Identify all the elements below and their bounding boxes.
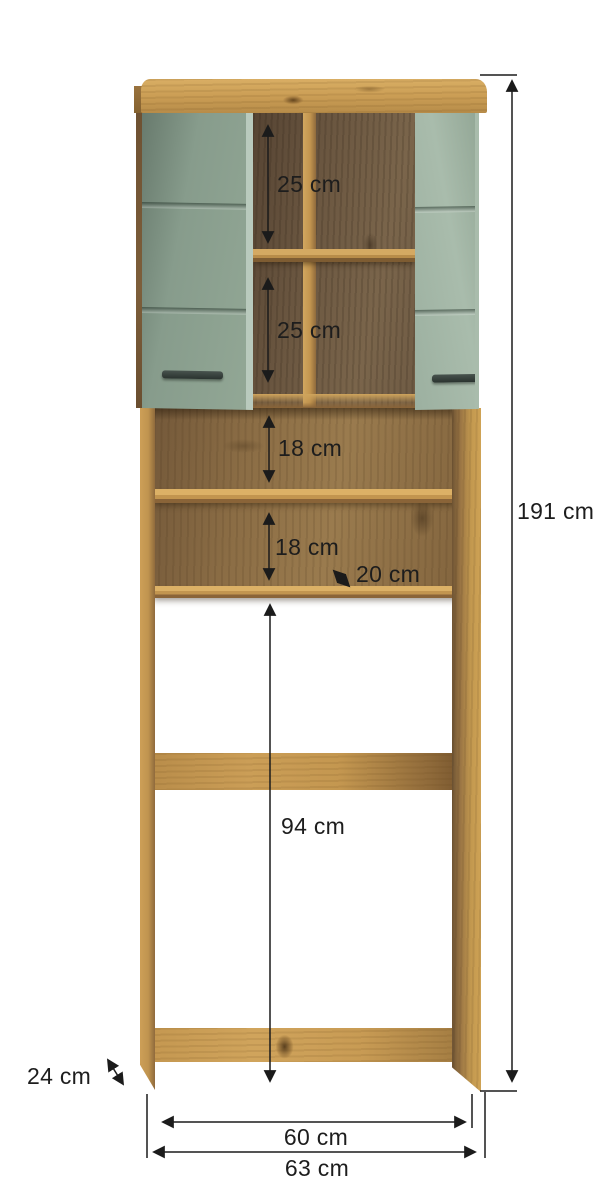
dimension-label-shelf-depth: 20 cm — [356, 562, 420, 586]
dimension-label-overall-height: 191 cm — [517, 499, 594, 523]
open-shelf-upper-board — [151, 489, 469, 503]
dimension-label-inner-width: 60 cm — [284, 1125, 348, 1149]
left-door-handle — [162, 370, 223, 379]
dimension-label-top-compartment-lower: 25 cm — [277, 318, 341, 342]
lower-crossbar — [146, 1028, 454, 1062]
cabinet-middle-shelf — [253, 249, 416, 262]
cabinet-underside-shadow — [154, 408, 452, 420]
left-side-panel — [140, 408, 155, 1090]
dimension-label-top-compartment-upper: 25 cm — [277, 172, 341, 196]
door-groove — [142, 202, 246, 210]
door-groove — [415, 309, 475, 316]
top-panel — [141, 79, 487, 113]
dimension-label-side-depth: 24 cm — [27, 1064, 91, 1088]
dimension-label-outer-width: 63 cm — [285, 1156, 349, 1180]
right-side-panel — [452, 408, 481, 1092]
door-groove — [142, 307, 246, 315]
left-door — [142, 104, 253, 410]
dimension-label-open-shelf-upper: 18 cm — [278, 436, 342, 460]
right-door-handle — [432, 374, 478, 383]
dim-line-side-depth — [108, 1060, 123, 1084]
furniture-dimension-diagram: 25 cm 25 cm 18 cm 18 cm 20 cm 94 cm 191 … — [0, 0, 601, 1200]
cabinet-bottom-board — [250, 394, 420, 408]
dimension-label-open-shelf-lower: 18 cm — [275, 535, 339, 559]
right-door — [415, 101, 479, 410]
upper-crossbar — [152, 753, 454, 790]
dimension-label-clearance-height: 94 cm — [281, 814, 345, 838]
door-groove — [415, 206, 475, 213]
open-shelf-lower-board — [151, 586, 469, 598]
